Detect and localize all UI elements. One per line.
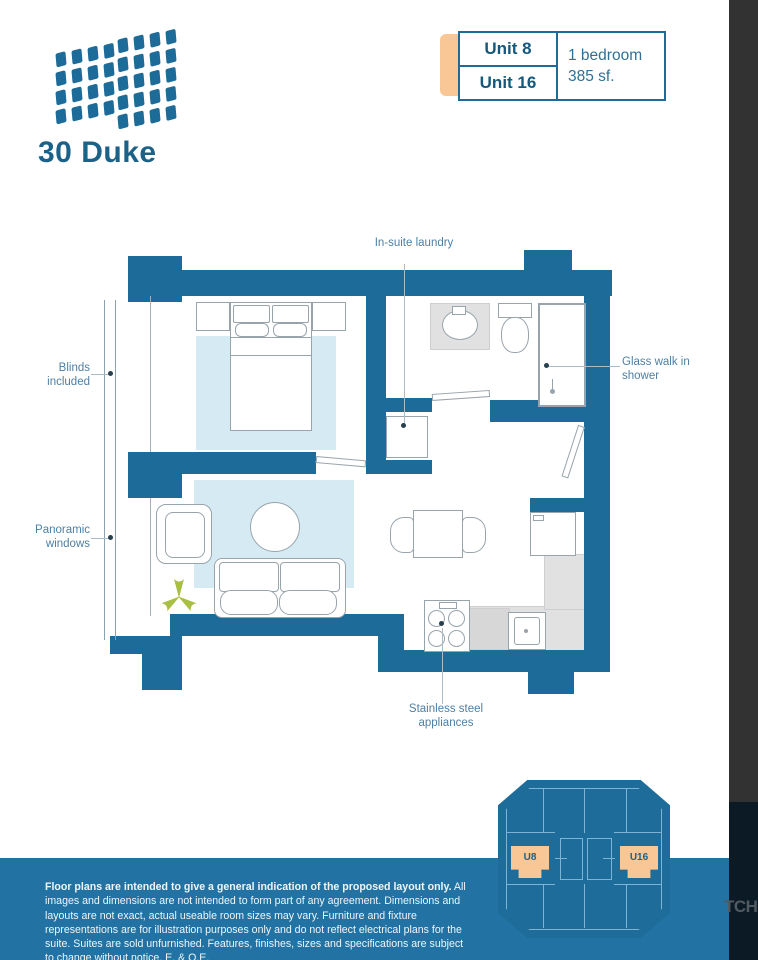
fridge	[530, 512, 576, 556]
unit-area: 385 sf.	[568, 66, 664, 87]
sofa-back-cushion	[219, 562, 279, 592]
kitchen-sink	[508, 612, 546, 650]
logo-tower-right-icon	[118, 29, 177, 129]
entry-door	[561, 425, 584, 479]
disclaimer-bold: Floor plans are intended to give a gener…	[45, 881, 452, 893]
appliances-leader-dot	[439, 621, 444, 626]
right-dark-strip-bottom	[729, 802, 758, 960]
armchair-cushion	[165, 512, 205, 558]
disclaimer-text: Floor plans are intended to give a gener…	[45, 880, 473, 960]
glass-shower	[538, 303, 586, 407]
coffee-table	[250, 502, 300, 552]
shower-leader-dot	[544, 363, 549, 368]
dining-table	[413, 510, 463, 558]
sofa-seat-cushion	[279, 590, 337, 615]
panoramic-window-wall	[104, 300, 116, 640]
bed-pillow	[273, 323, 307, 337]
bed-pillow	[272, 305, 309, 323]
sink-faucet	[452, 306, 466, 315]
wall-segment	[366, 296, 386, 474]
unit-specs-column: 1 bedroom 385 sf.	[558, 33, 664, 99]
wall-segment	[128, 452, 182, 498]
bed-pillow	[233, 305, 270, 323]
toilet-bowl	[501, 317, 529, 353]
bed-pillow	[235, 323, 269, 337]
unit-bed-type: 1 bedroom	[568, 45, 664, 66]
label-in-suite-laundry: In-suite laundry	[368, 237, 460, 251]
unit-number-bottom: Unit 16	[460, 67, 556, 99]
wall-segment	[180, 452, 316, 474]
sofa-back-cushion	[280, 562, 340, 592]
blinds-leader-dot	[108, 371, 113, 376]
label-blinds-included: Blinds included	[26, 362, 90, 389]
unit-info-card: Unit 8 Unit 16 1 bedroom 385 sf.	[458, 31, 666, 101]
floor-plan-sheet: 30 Duke Unit 8 Unit 16 1 bedroom 385 sf.	[0, 0, 758, 960]
logo-tower-left-icon	[56, 43, 115, 124]
laundry-leader-line	[404, 264, 405, 424]
bathroom-door	[432, 390, 490, 401]
right-dark-strip	[729, 0, 758, 802]
label-glass-walk-in-shower: Glass walk in shower	[622, 356, 710, 383]
wall-segment	[366, 398, 432, 412]
wall-segment	[142, 648, 182, 690]
watermark-text: TCH	[724, 897, 758, 917]
washer-dryer	[386, 416, 428, 458]
brand-name: 30 Duke	[38, 136, 157, 170]
keyplan-core	[587, 838, 612, 880]
dining-chair-right	[462, 517, 486, 553]
unit-numbers-column: Unit 8 Unit 16	[460, 33, 558, 99]
laundry-leader-dot	[401, 423, 406, 428]
label-panoramic-windows: Panoramic windows	[18, 524, 90, 551]
kitchen-counter-right	[544, 554, 586, 610]
dishwasher	[466, 608, 510, 650]
window-inner-line	[150, 498, 151, 616]
sofa-seat-cushion	[220, 590, 278, 615]
plant-icon	[158, 576, 200, 618]
wall-segment	[128, 256, 182, 302]
building-key-plan: U8 U16	[498, 780, 670, 938]
wall-segment	[584, 422, 610, 672]
unit-card-accent-bar	[440, 34, 460, 96]
stove	[424, 600, 470, 652]
nightstand-left	[196, 302, 230, 331]
window-inner-line	[150, 296, 151, 452]
windows-leader-dot	[108, 535, 113, 540]
wall-segment	[528, 668, 574, 694]
appliances-leader-line	[442, 628, 443, 704]
wall-segment	[180, 270, 612, 296]
wall-segment	[524, 250, 572, 272]
bedroom-sliding-door	[316, 456, 366, 467]
toilet-tank	[498, 303, 532, 318]
wall-segment	[366, 460, 432, 474]
label-stainless-steel-appliances: Stainless steel appliances	[388, 703, 504, 730]
dining-chair-left	[390, 517, 414, 553]
keyplan-core	[560, 838, 583, 880]
unit-number-top: Unit 8	[460, 33, 556, 67]
bed	[230, 337, 312, 431]
shower-leader-line	[547, 366, 620, 367]
wall-segment	[530, 498, 584, 512]
nightstand-right	[312, 302, 346, 331]
